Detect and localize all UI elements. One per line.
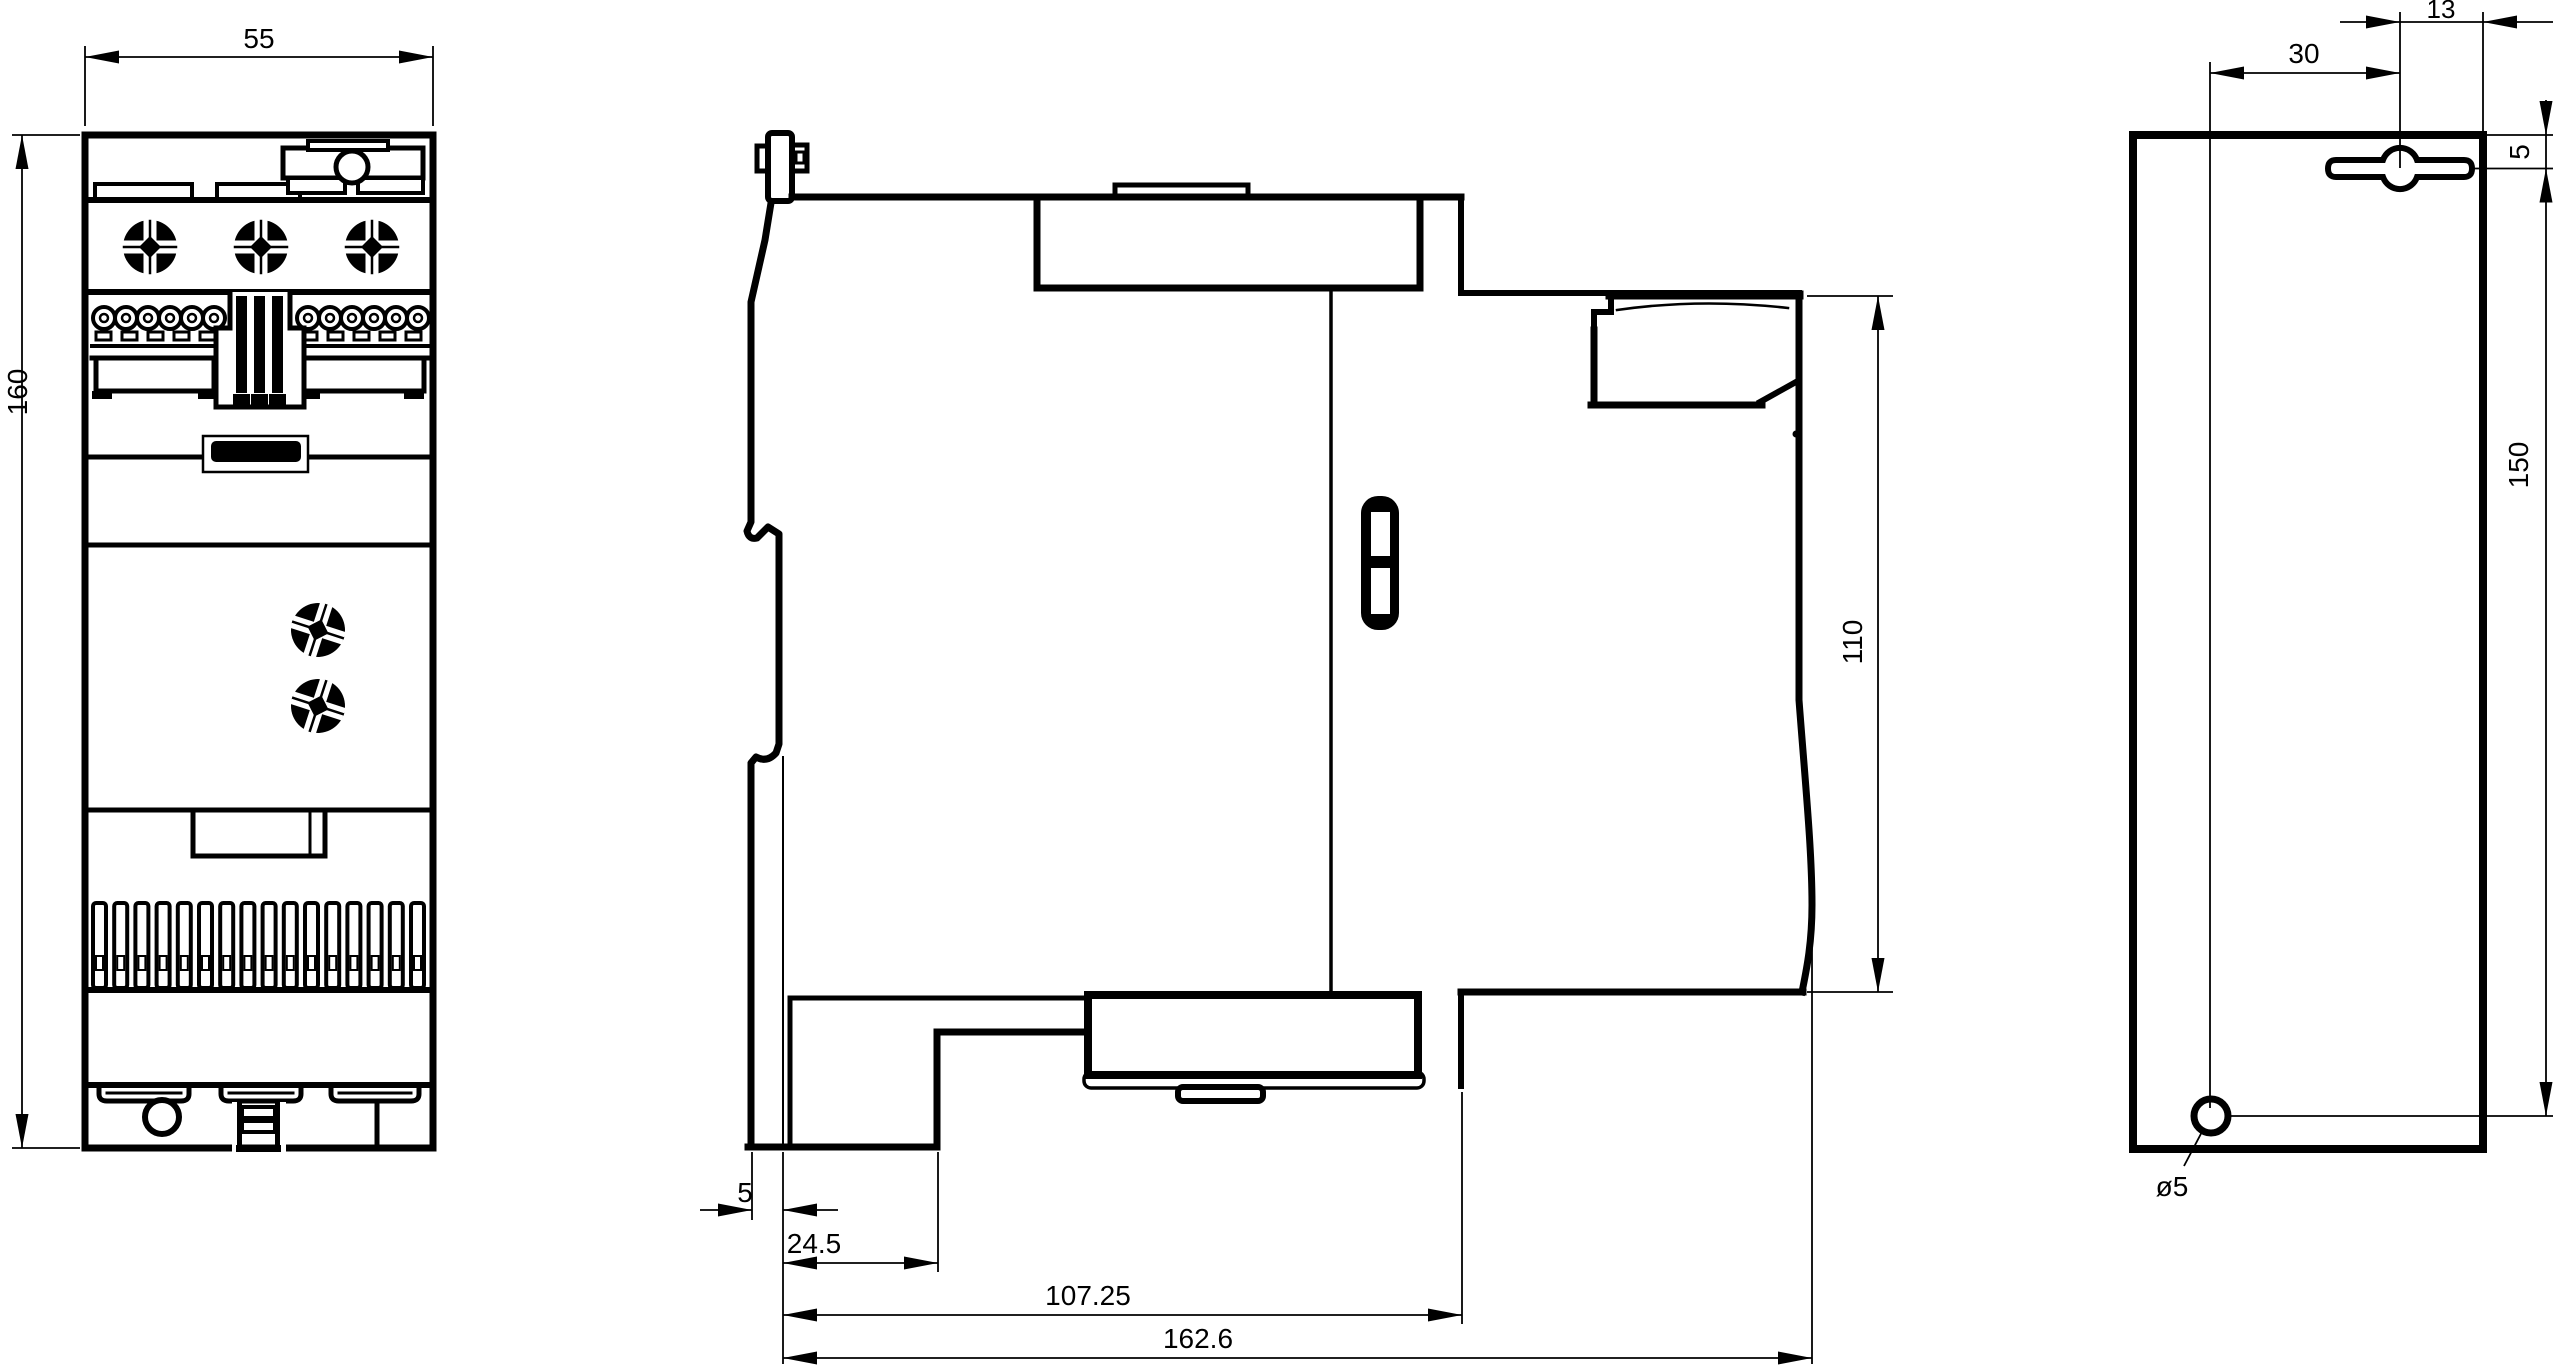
dim-side-front-offset: 5 — [737, 1177, 753, 1208]
terminal-cover — [1037, 197, 1420, 288]
label-window — [211, 441, 301, 462]
screw-icon — [234, 220, 288, 274]
side-dimensions — [700, 296, 1893, 1364]
release-lever — [1361, 496, 1399, 630]
rear-edge — [1799, 295, 1812, 992]
label-recess — [193, 810, 325, 856]
rear-view — [2133, 135, 2483, 1149]
dim-side-vent-depth: 24.5 — [787, 1228, 842, 1259]
bottom-terminal-block — [1084, 995, 1424, 1101]
dim-rear-keyhole-top: 5 — [2504, 144, 2535, 160]
dim-side-body-depth: 107.25 — [1045, 1280, 1131, 1311]
din-rail-pocket — [1591, 295, 1799, 405]
screw-icon — [123, 220, 177, 274]
dim-side-total-depth: 162.6 — [1163, 1323, 1233, 1354]
dim-rear-keyhole-edge: 13 — [2427, 0, 2456, 24]
screw-icon — [345, 220, 399, 274]
side-dimension-arrows — [718, 296, 1885, 1365]
line-terminal-screws — [123, 220, 399, 274]
front-outline — [85, 135, 433, 1148]
dim-rear-hole-diameter: ø5 — [2156, 1171, 2189, 1202]
dim-rear-hole-spacing: 150 — [2503, 442, 2534, 489]
dim-rear-hole-offset: 30 — [2288, 38, 2319, 69]
side-view — [747, 133, 1812, 1148]
clip-hole — [336, 151, 368, 183]
dim-side-rear-height: 110 — [1837, 620, 1868, 665]
front-profile — [747, 203, 779, 1147]
dim-front-height: 160 — [2, 369, 33, 416]
busbar-link — [216, 292, 304, 407]
top-tab — [757, 133, 807, 201]
mounting-hole — [2194, 1099, 2228, 1133]
front-view — [85, 135, 433, 1152]
rear-outline — [2133, 135, 2483, 1149]
latch-hole — [145, 1100, 179, 1134]
dim-front-width: 55 — [243, 23, 274, 54]
dimension-drawing: 55 160 — [0, 0, 2553, 1372]
